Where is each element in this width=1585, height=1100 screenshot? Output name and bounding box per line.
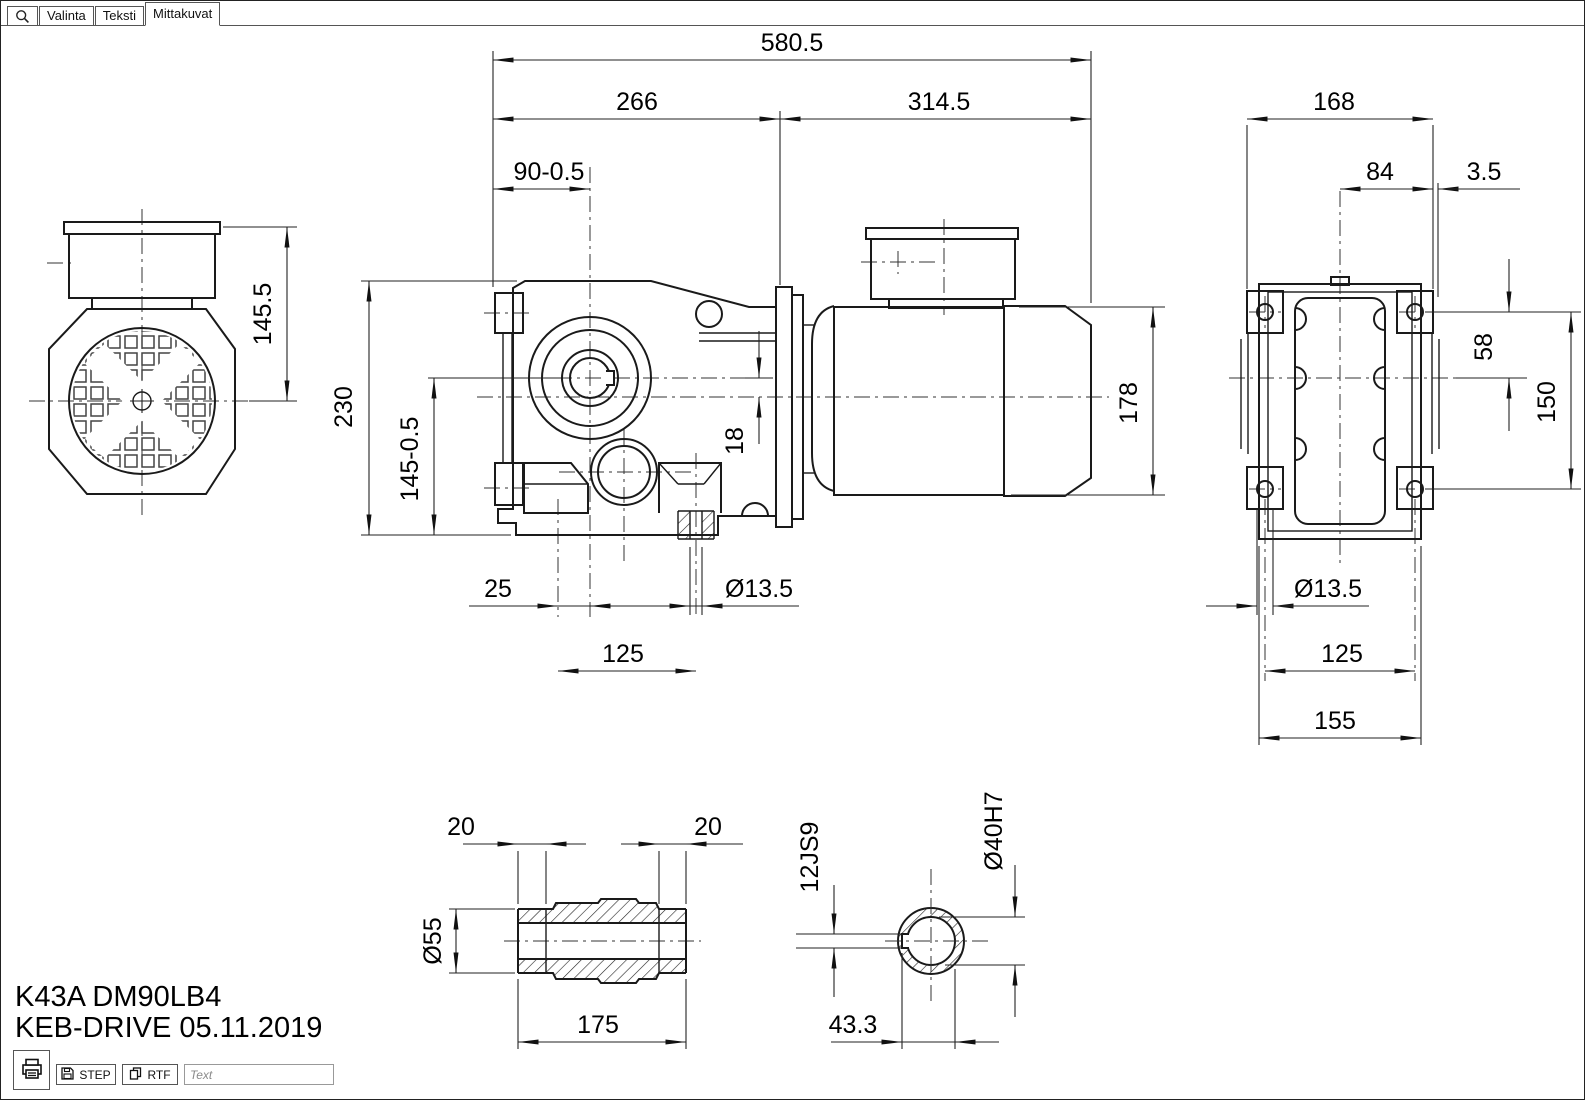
dim-keyway-width: 12JS9 — [796, 822, 824, 893]
dim-overall-width: 168 — [1313, 88, 1355, 116]
dim-face-to-axis: 90-0.5 — [514, 158, 585, 186]
dim-bottom-hole-dia: Ø13.5 — [1294, 575, 1362, 603]
dim-groove-left: 20 — [447, 813, 475, 841]
shaft-section-view: 20 20 Ø55 175 — [419, 813, 743, 1049]
dim-shaft-outer-dia: Ø55 — [419, 917, 447, 964]
dim-keyway-depth: 43.3 — [829, 1011, 878, 1039]
dim-groove-right: 20 — [694, 813, 722, 841]
side-view: 580.5 266 314.5 90-0.5 230 145-0.5 18 17… — [330, 29, 1165, 671]
bottom-view: 168 84 3.5 58 150 Ø13.5 125 — [1206, 88, 1581, 745]
dim-foot-hole-pitch: 125 — [602, 640, 644, 668]
drawing-canvas: 145.5 — [1, 1, 1585, 1100]
dim-housing-height: 230 — [330, 386, 358, 428]
dim-motor-length: 314.5 — [908, 88, 971, 116]
tab-bar: Valinta Teksti Mittakuvat — [1, 1, 1584, 26]
dim-axis-to-hole: 58 — [1470, 333, 1498, 361]
tab-mittakuvat[interactable]: Mittakuvat — [145, 2, 220, 26]
dim-bottom-hole-pitch: 125 — [1321, 640, 1363, 668]
front-view: 145.5 — [29, 209, 297, 517]
dim-bore-dia: Ø40H7 — [980, 791, 1008, 870]
dim-foot-hole-dia: Ø13.5 — [725, 575, 793, 603]
dim-base-width: 155 — [1314, 707, 1356, 735]
dim-motor-height: 178 — [1115, 382, 1143, 424]
tab-teksti[interactable]: Teksti — [95, 6, 144, 26]
app-window: Valinta Teksti Mittakuvat — [0, 0, 1585, 1100]
dim-pad-height: 3.5 — [1467, 158, 1502, 186]
search-tab[interactable] — [7, 6, 38, 26]
dim-axis-height: 145-0.5 — [396, 417, 424, 502]
bore-section-view: 12JS9 Ø40H7 43.3 — [796, 791, 1025, 1049]
dim-front-height-to-axis: 145.5 — [249, 283, 277, 346]
dim-shaft-length: 175 — [577, 1011, 619, 1039]
tab-valinta[interactable]: Valinta — [39, 6, 94, 26]
drawing-subtitle: KEB-DRIVE 05.11.2019 — [15, 1013, 322, 1044]
drawing-title: K43A DM90LB4 — [15, 982, 322, 1013]
dim-foot-hole-to-axis: 25 — [484, 575, 512, 603]
dim-overall-length: 580.5 — [761, 29, 824, 57]
dim-gearbox-length: 266 — [616, 88, 658, 116]
dim-hole-span: 150 — [1533, 381, 1561, 423]
search-icon — [15, 9, 30, 24]
dim-axis-offset: 18 — [721, 427, 749, 455]
dim-axis-to-edge: 84 — [1366, 158, 1394, 186]
title-block: K43A DM90LB4 KEB-DRIVE 05.11.2019 — [15, 982, 322, 1044]
